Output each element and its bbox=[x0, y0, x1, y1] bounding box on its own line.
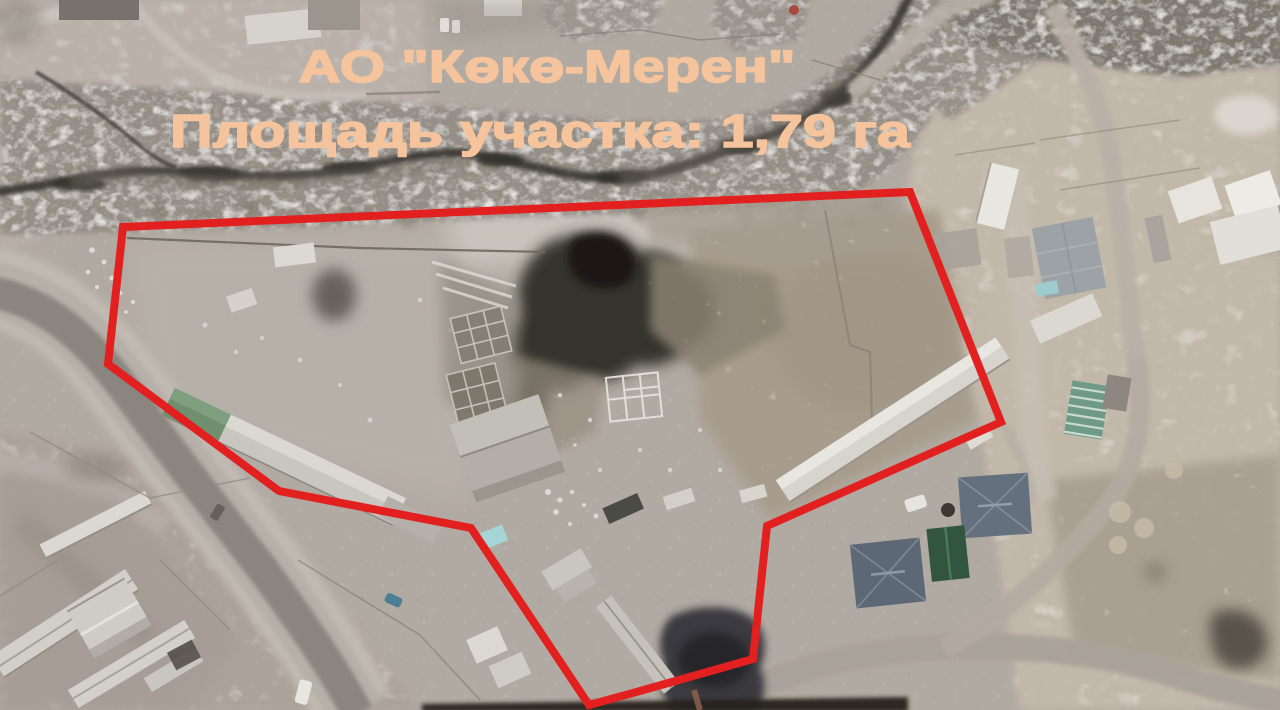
svg-text:Площадь участка: 1,79 га: Площадь участка: 1,79 га bbox=[170, 105, 911, 157]
svg-text:АО "Көкө-Мерен": АО "Көкө-Мерен" bbox=[299, 41, 796, 92]
